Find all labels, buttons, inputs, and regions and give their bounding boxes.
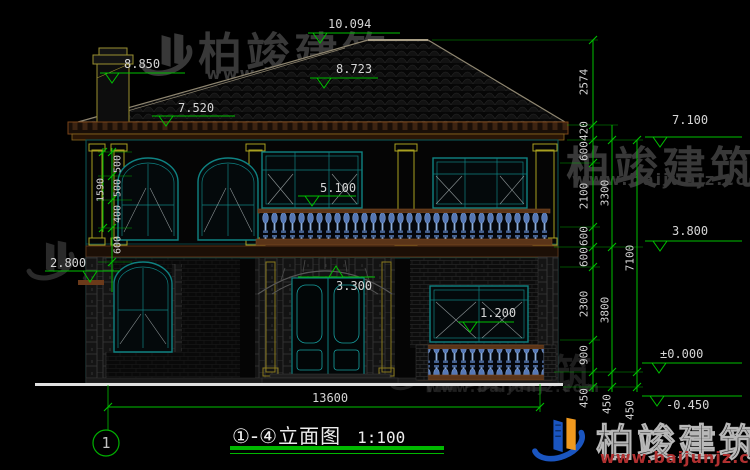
dim-right-inner: 420 [578, 121, 591, 141]
dim-left-segment: 400 [113, 205, 124, 223]
elevation-label-left-upper: 8.850 [124, 57, 160, 71]
dim-right-outer: 7100 [624, 245, 637, 272]
elevation-label-left-ledge: 2.800 [50, 256, 86, 270]
dim-right-inner: 600 [578, 226, 591, 246]
dim-right-inner: 2300 [578, 291, 591, 318]
eave-fascia [68, 122, 568, 140]
drawing-title-text: ①-④立面图 [232, 420, 341, 449]
dim-right-inner: 600 [578, 247, 591, 267]
title-underline-thin [230, 453, 444, 454]
roof [78, 40, 565, 122]
balcony-balustrade [256, 209, 552, 245]
elevation-label-roof-mid: 7.520 [178, 101, 214, 115]
drawing-title: ①-④立面图 1:100 [232, 420, 405, 449]
elevation-label-ridge: 10.094 [328, 17, 371, 31]
dim-right-middle: 3800 [599, 297, 612, 324]
dim-right-inner: 2574 [578, 69, 591, 96]
elevation-label-left-roof: 8.723 [336, 62, 372, 76]
dim-left-segment: 500 [113, 179, 124, 197]
porch-balustrade [416, 345, 556, 380]
elevation-label-right-floor2: 3.800 [672, 224, 708, 238]
brand-logo-icon [528, 414, 590, 466]
elevation-label-ground-below: -0.450 [666, 398, 709, 412]
ground-line [35, 383, 563, 386]
dim-right-inner: 600 [578, 141, 591, 161]
axis-bubble-label: 1 [98, 434, 114, 452]
cad-elevation-drawing: 柏竣建筑 www.baijunjz.com 柏竣建筑 www.baijunjz.… [0, 0, 750, 470]
title-underline [230, 446, 444, 450]
dim-left-segment: 600 [113, 236, 124, 254]
elevation-label-floor2-window: 5.100 [320, 181, 356, 195]
dim-right-inner: 2100 [578, 183, 591, 210]
dim-right-middle: 450 [601, 394, 614, 414]
dim-right-middle: 3300 [599, 180, 612, 207]
first-floor-left-window [104, 262, 182, 352]
elevation-label-porch-window: 1.200 [480, 306, 516, 320]
brand-watermark-url: www.baijunjz.com [600, 448, 750, 467]
dim-right-inner: 450 [578, 388, 591, 408]
dim-left-overall: 1590 [96, 178, 107, 202]
elevation-label-ground-zero: ±0.000 [660, 347, 703, 361]
elevation-label-door-arch: 3.300 [336, 279, 372, 293]
dim-right-inner: 900 [578, 345, 591, 365]
dim-left-segment: 500 [113, 155, 124, 173]
elevation-label-right-eave: 7.100 [672, 113, 708, 127]
dim-overall-width: 13600 [312, 391, 348, 405]
drawing-scale: 1:100 [357, 428, 405, 447]
